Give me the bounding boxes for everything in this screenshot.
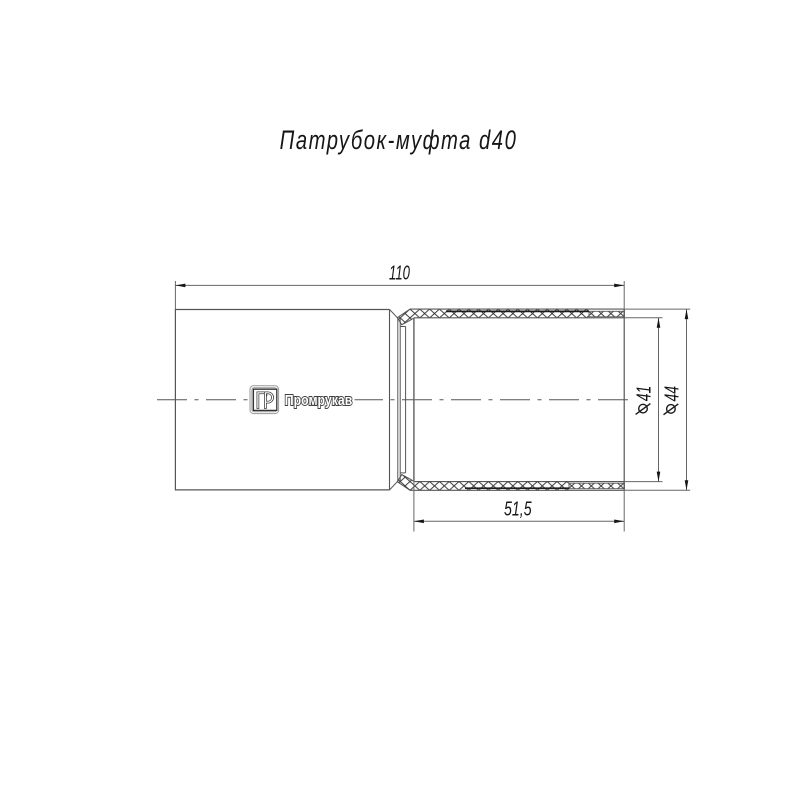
svg-text:110: 110 (389, 260, 410, 284)
svg-text:44: 44 (660, 386, 683, 402)
svg-text:Промрукав: Промрукав (285, 392, 352, 408)
svg-text:51,5: 51,5 (504, 497, 532, 520)
svg-text:41: 41 (632, 386, 655, 401)
svg-text:Патрубок-муфта d40: Патрубок-муфта d40 (280, 125, 518, 156)
